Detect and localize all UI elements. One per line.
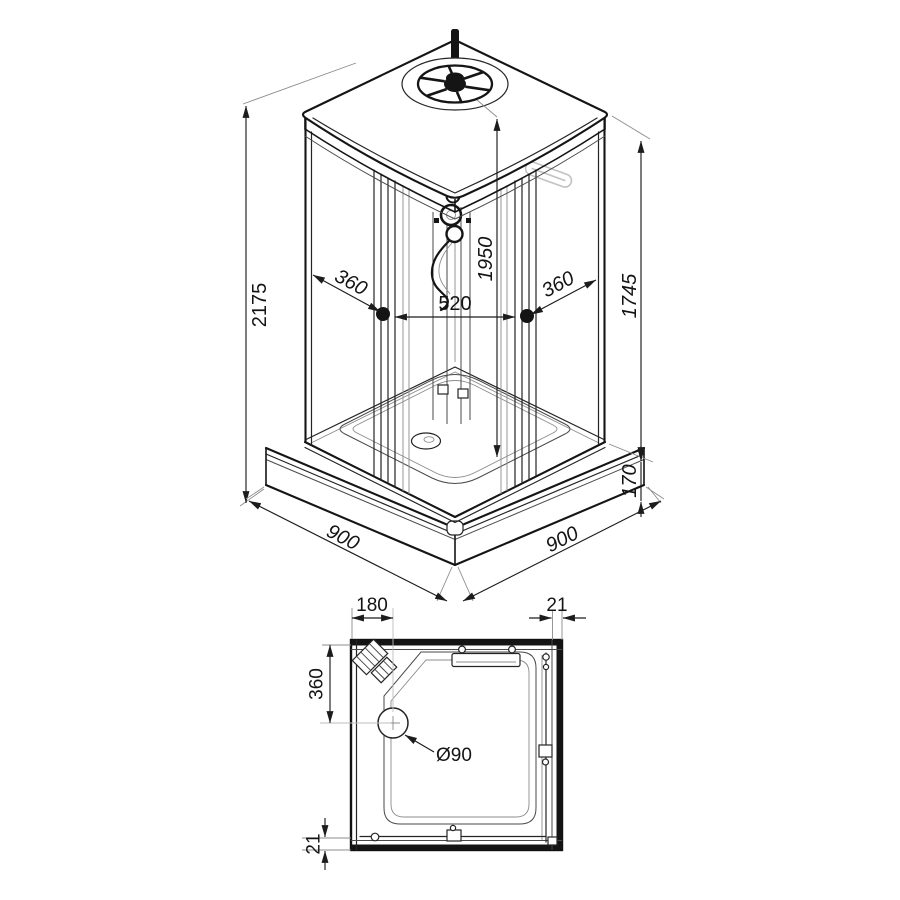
plan-view: 180 21 360 Ø90 21 xyxy=(302,595,586,870)
dimension-base-width: 900 xyxy=(458,487,664,601)
dim-label-side-glass-height: 1745 xyxy=(619,273,641,318)
dim-label-tray-height: 170 xyxy=(619,464,641,497)
dim-label-base-width: 900 xyxy=(542,522,582,557)
dimension-side-glass-height: 1745 xyxy=(609,116,653,462)
corner-guide-plan xyxy=(548,837,557,845)
dim-label-wall-profile-bottom: 21 xyxy=(304,833,325,854)
dim-label-total-height: 2175 xyxy=(249,283,271,328)
dimension-left-fixed-panel: 360 xyxy=(313,265,380,311)
dim-label-right-fixed-panel: 360 xyxy=(538,267,578,302)
left-door-stile xyxy=(374,170,381,480)
dimension-right-fixed-panel: 360 xyxy=(531,267,596,314)
dim-label-drain-offset-x: 180 xyxy=(356,595,388,616)
drain-iso xyxy=(412,433,441,449)
dim-label-drain-diameter: Ø90 xyxy=(436,745,472,766)
dim-label-wall-profile-top: 21 xyxy=(546,595,567,616)
shower-cabin-technical-drawing: 2175 360 520 360 1950 xyxy=(0,0,900,900)
dimension-wall-profile-top: 21 xyxy=(529,595,586,640)
isometric-view: 2175 360 520 360 1950 xyxy=(240,29,664,601)
left-door-knob xyxy=(376,307,390,321)
drawing-canvas: 2175 360 520 360 1950 xyxy=(0,0,900,900)
dim-label-left-fixed-panel: 360 xyxy=(331,265,371,300)
shower-tray-base xyxy=(266,448,644,565)
roof xyxy=(303,29,607,219)
top-shower-head xyxy=(402,29,508,110)
right-door-knob xyxy=(520,309,534,323)
dim-label-drain-offset-y: 360 xyxy=(307,668,328,700)
dim-label-entry-opening: 520 xyxy=(438,293,471,315)
dimension-base-depth: 900 xyxy=(246,487,452,601)
dimension-wall-profile-bottom: 21 xyxy=(302,818,351,870)
towel-bar xyxy=(524,160,574,189)
dim-label-inner-height: 1950 xyxy=(475,237,497,282)
dim-label-base-depth: 900 xyxy=(323,520,363,555)
right-door-stile xyxy=(529,170,536,480)
